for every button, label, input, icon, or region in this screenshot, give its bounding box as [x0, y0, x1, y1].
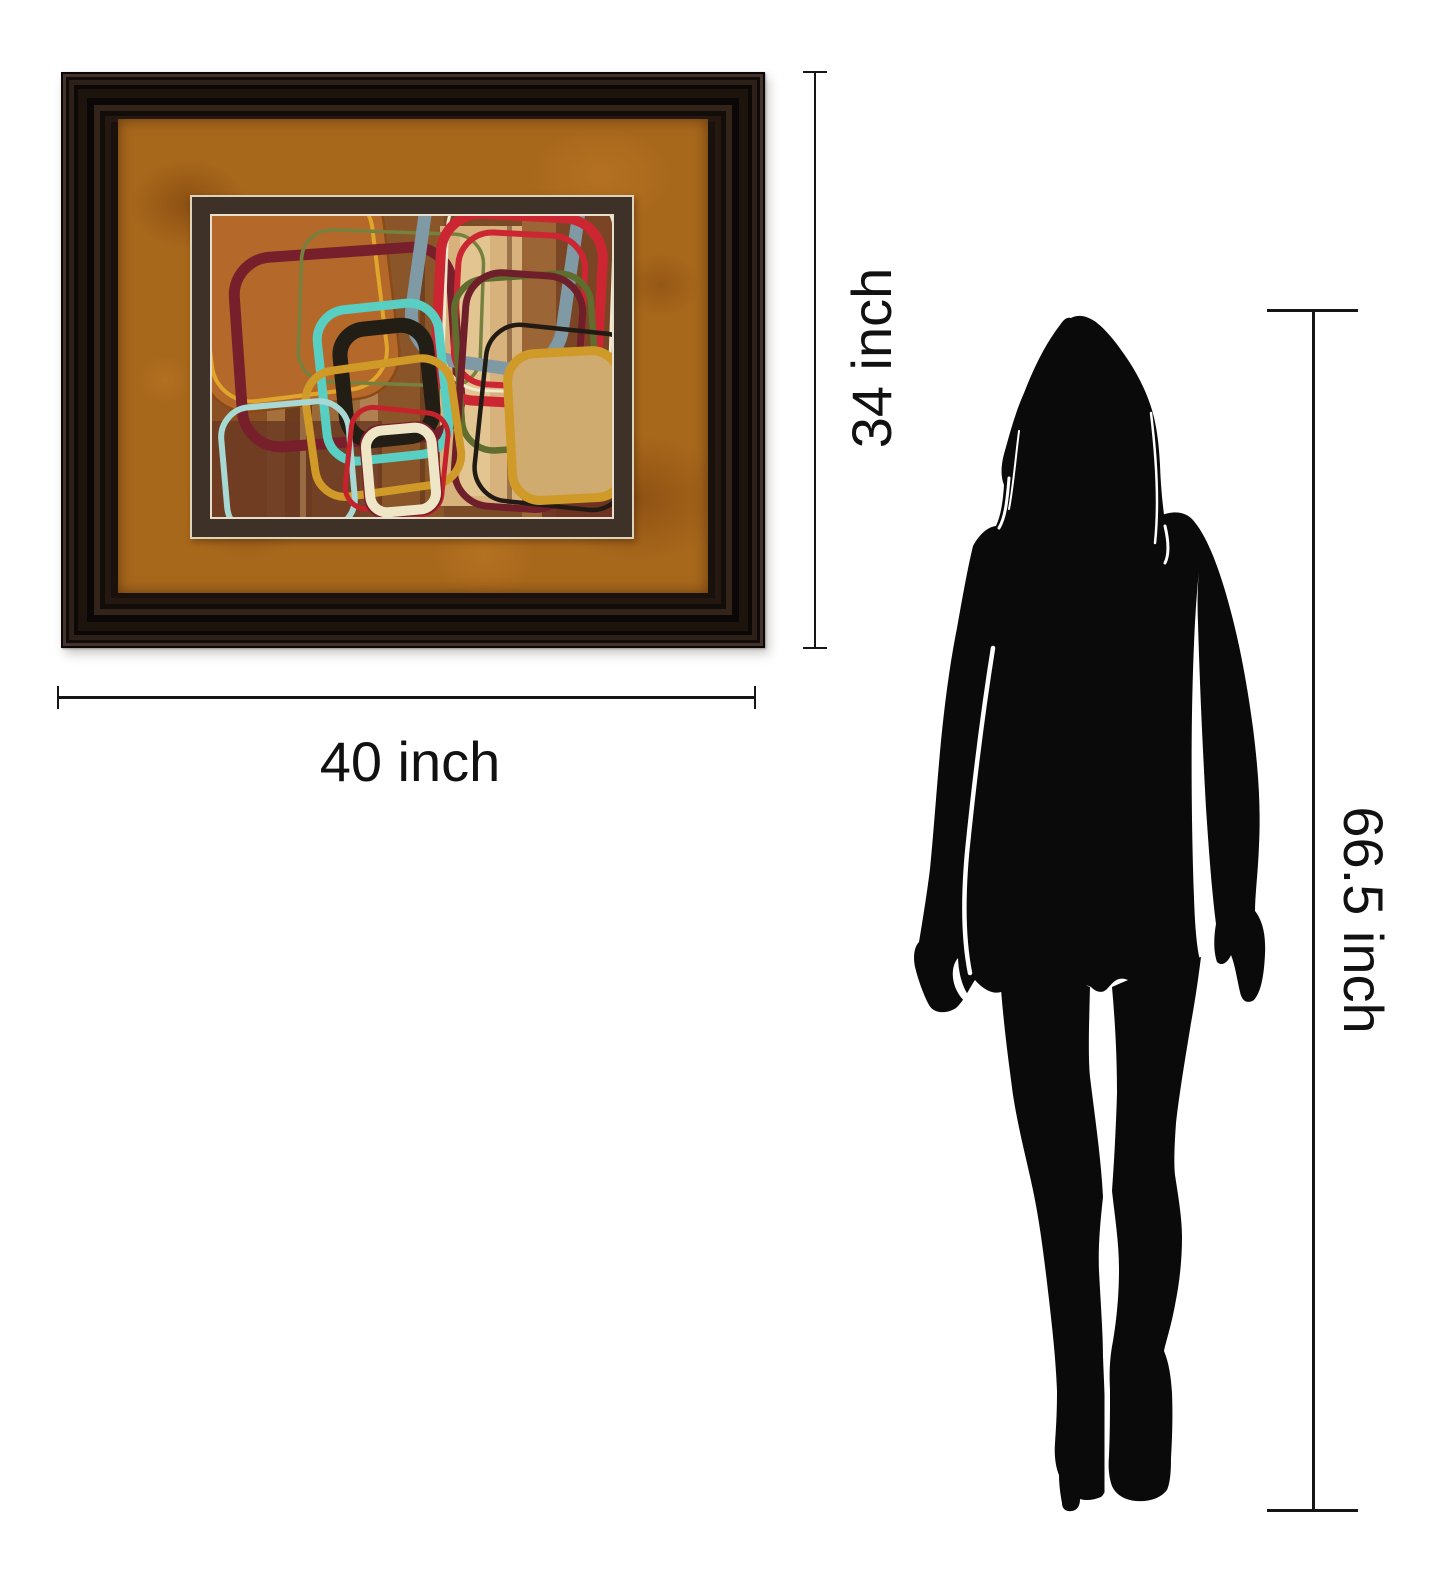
- height-dimension-top-cap: [803, 71, 827, 73]
- person-height-top-cap: [1267, 309, 1358, 312]
- width-dimension-right-cap: [754, 686, 756, 709]
- artwork-height-label: 34 inch: [840, 258, 904, 458]
- person-height-bottom-cap: [1267, 1509, 1358, 1512]
- abstract-artwork: [210, 214, 614, 519]
- size-comparison-diagram: 34 inch 40 inch 66.5 inch: [0, 0, 1445, 1588]
- person-height-dimension-line: [1312, 310, 1315, 1511]
- height-dimension-bottom-cap: [803, 647, 827, 649]
- width-dimension-line: [58, 696, 755, 699]
- artwork-width-label: 40 inch: [310, 730, 510, 794]
- height-dimension-line: [814, 72, 816, 648]
- woman-silhouette: [903, 313, 1275, 1517]
- abstract-art-svg: [212, 216, 612, 517]
- person-height-label: 66.5 inch: [1331, 790, 1395, 1050]
- width-dimension-left-cap: [57, 686, 59, 709]
